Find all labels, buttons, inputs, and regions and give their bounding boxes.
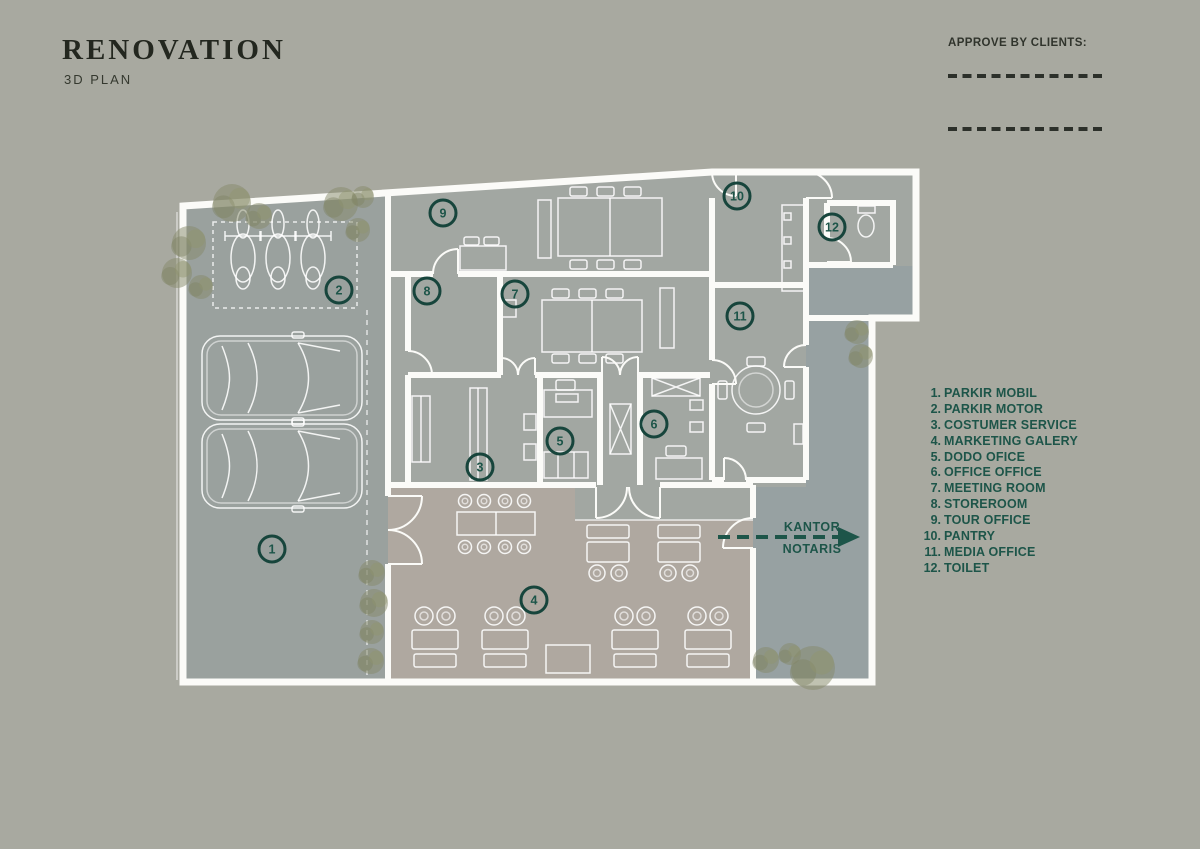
legend-item-label: PARKIR MOTOR <box>944 402 1043 418</box>
legend-item-label: MEDIA OFFICE <box>944 545 1036 561</box>
svg-text:7: 7 <box>512 288 519 302</box>
svg-text:6: 6 <box>651 418 658 432</box>
legend-item: 10.PANTRY <box>920 529 1078 545</box>
svg-text:2: 2 <box>336 284 343 298</box>
legend-item: 1.PARKIR MOBIL <box>920 386 1078 402</box>
legend-item: 8.STOREROOM <box>920 497 1078 513</box>
legend: 1.PARKIR MOBIL2.PARKIR MOTOR3.COSTUMER S… <box>920 386 1078 577</box>
legend-item-label: PARKIR MOBIL <box>944 386 1037 402</box>
legend-item-number: 5. <box>920 450 941 466</box>
legend-item: 7.MEETING ROOM <box>920 481 1078 497</box>
legend-item-number: 12. <box>920 561 941 577</box>
entry-foyer-floor <box>575 487 753 520</box>
legend-item-label: MEETING ROOM <box>944 481 1046 497</box>
legend-item: 5.DODO OFICE <box>920 450 1078 466</box>
legend-item-label: PANTRY <box>944 529 995 545</box>
tree-icon <box>351 186 374 208</box>
legend-item-label: TOILET <box>944 561 989 577</box>
svg-text:9: 9 <box>440 207 447 221</box>
courtyard-top <box>806 266 916 318</box>
legend-item: 2.PARKIR MOTOR <box>920 402 1078 418</box>
svg-text:1: 1 <box>269 543 276 557</box>
plan-sheet: RENOVATION 3D PLAN APPROVE BY CLIENTS: <box>0 0 1200 849</box>
legend-item-number: 9. <box>920 513 941 529</box>
legend-item-number: 10. <box>920 529 941 545</box>
legend-item-label: COSTUMER SERVICE <box>944 418 1077 434</box>
legend-item-number: 3. <box>920 418 941 434</box>
legend-item: 11.MEDIA OFFICE <box>920 545 1078 561</box>
svg-text:4: 4 <box>531 594 538 608</box>
legend-item-number: 2. <box>920 402 941 418</box>
kantor-line2: NOTARIS <box>783 542 842 556</box>
svg-text:3: 3 <box>477 461 484 475</box>
svg-text:11: 11 <box>733 310 746 324</box>
legend-item-number: 8. <box>920 497 941 513</box>
svg-text:8: 8 <box>424 285 431 299</box>
svg-text:12: 12 <box>825 221 839 235</box>
svg-text:5: 5 <box>557 435 564 449</box>
legend-item-number: 11. <box>920 545 941 561</box>
legend-item: 6.OFFICE OFFICE <box>920 465 1078 481</box>
legend-item-label: TOUR OFFICE <box>944 513 1031 529</box>
legend-item-label: MARKETING GALERY <box>944 434 1078 450</box>
legend-item: 4.MARKETING GALERY <box>920 434 1078 450</box>
legend-item-number: 6. <box>920 465 941 481</box>
legend-item-number: 4. <box>920 434 941 450</box>
legend-item: 3.COSTUMER SERVICE <box>920 418 1078 434</box>
tree-icon <box>161 258 192 288</box>
legend-item-number: 1. <box>920 386 941 402</box>
legend-item: 12.TOILET <box>920 561 1078 577</box>
legend-item-label: STOREROOM <box>944 497 1028 513</box>
legend-item-label: DODO OFICE <box>944 450 1025 466</box>
legend-item-label: OFFICE OFFICE <box>944 465 1042 481</box>
tree-icon <box>212 184 251 222</box>
tree-icon <box>323 187 358 221</box>
kantor-line1: KANTOR <box>784 520 840 534</box>
legend-item-number: 7. <box>920 481 941 497</box>
svg-text:10: 10 <box>730 190 744 204</box>
legend-item: 9.TOUR OFFICE <box>920 513 1078 529</box>
